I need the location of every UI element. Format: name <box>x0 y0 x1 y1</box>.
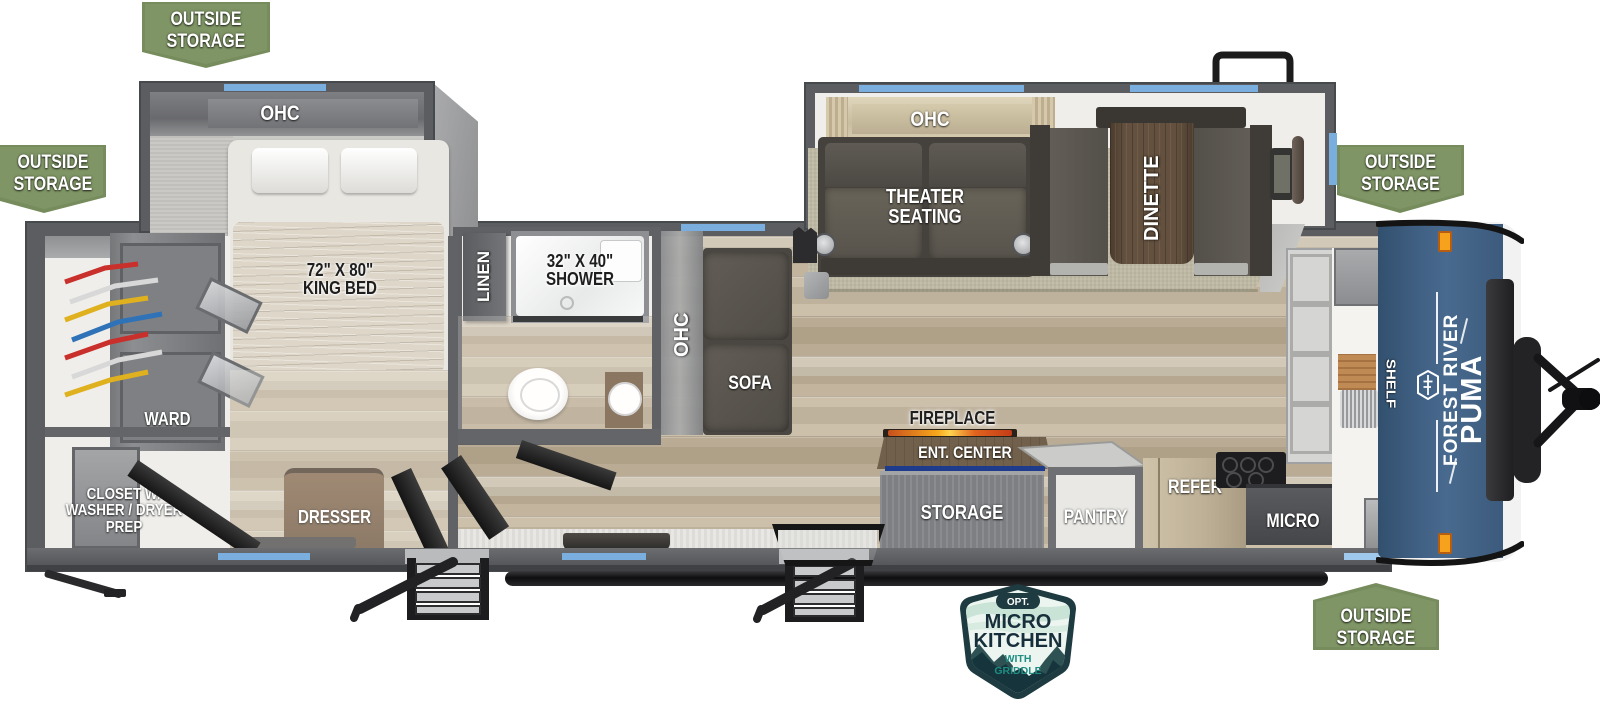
svg-text:KITCHEN: KITCHEN <box>974 630 1063 652</box>
svg-text:OPT.: OPT. <box>1007 597 1029 608</box>
svg-text:WITH: WITH <box>1005 653 1032 665</box>
svg-text:GRIDDLE: GRIDDLE <box>994 665 1041 677</box>
